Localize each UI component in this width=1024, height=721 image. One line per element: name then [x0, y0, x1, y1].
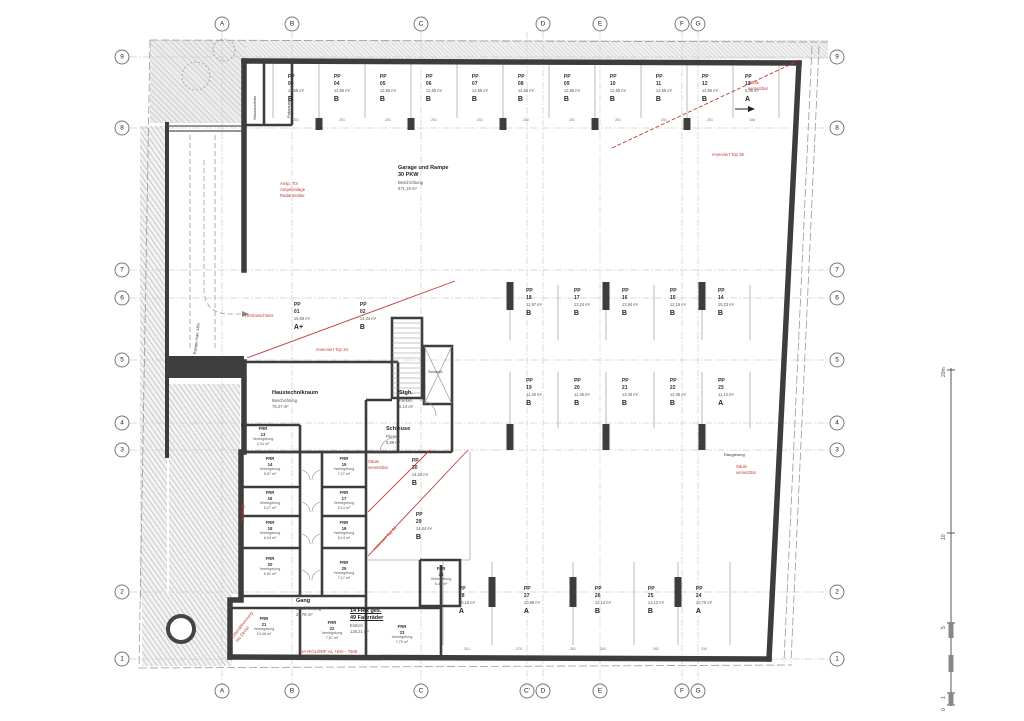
stall-area: 12,55 m² — [426, 88, 442, 93]
room-info: Beschichtung 28,78 m² — [296, 606, 321, 617]
stall-area: 12,14 m² — [595, 600, 611, 605]
frr-id: FRR 23 — [392, 624, 413, 635]
stall-id: PP 20 — [574, 378, 590, 391]
stall-id: PP 12 — [702, 74, 718, 87]
stall-type: B — [574, 309, 590, 318]
parking-stall-label: PP 01 15,59 m² A+ — [294, 302, 310, 332]
plan-annotation: Putzraum — [286, 101, 291, 118]
frr-area: 10,46 m² — [254, 632, 275, 637]
stall-id: PP 07 — [472, 74, 488, 87]
red-annotation: Säule versetzbar — [368, 459, 388, 471]
stall-area: 13,24 m² — [574, 302, 590, 307]
grid-axis-bubble: 8 — [115, 121, 130, 136]
grid-axis-bubble: B — [285, 17, 300, 32]
dimension-text: 251 — [431, 118, 437, 122]
stall-type: B — [702, 95, 718, 104]
grid-axis-bubble: 9 — [830, 50, 845, 65]
room-info: Beschichtung 971,18 m² — [398, 180, 448, 191]
frr-room-label: FRR 13 Verriegelung 3,34 m² — [253, 426, 274, 447]
grid-axis-label: F — [680, 688, 684, 695]
stall-id: PP 21 — [622, 378, 638, 391]
parking-stall-label: PP 06 12,55 m² B — [426, 74, 442, 104]
grid-axis-label: G — [695, 21, 700, 28]
grid-axis-bubble: F — [675, 17, 690, 32]
dimension-text: 5 — [941, 626, 947, 629]
grid-axis-bubble: C — [414, 17, 429, 32]
dimension-text: 301 — [570, 647, 576, 651]
stall-type: B — [412, 479, 428, 488]
grid-axis-label: 9 — [120, 54, 124, 61]
grid-axis-label: 1 — [120, 656, 124, 663]
grid-axis-bubble: D — [536, 17, 551, 32]
parking-stall-label: PP 25 13,12 m² B — [648, 586, 664, 616]
stall-type: B — [656, 95, 672, 104]
grid-axis-bubble: G — [691, 684, 706, 699]
grid-axis-bubble: C — [414, 684, 429, 699]
room-name: Haustechnikraum — [272, 390, 318, 397]
stall-type: A+ — [294, 323, 310, 332]
grid-axis-bubble: 6 — [830, 291, 845, 306]
stall-area: 15,59 m² — [294, 316, 310, 321]
stall-id: PP 04 — [334, 74, 350, 87]
plan-linework — [0, 0, 1024, 721]
room-info: Fliesen 5,14 m² — [399, 398, 413, 409]
stall-type: B — [564, 95, 580, 104]
red-annotation: Ansp. Tor Ampelanlage Radarmelder — [280, 181, 305, 198]
room-name: Stgh. — [399, 390, 413, 397]
parking-stall-label: PP 03 12,65 m² B — [288, 74, 304, 104]
stall-type: B — [360, 323, 376, 332]
frr-room-label: FRR 16 Verriegelung 5,27 m² — [260, 490, 281, 511]
frr-room-label: FRR 20 Verriegelung 6,62 m² — [260, 556, 281, 577]
frr-room-label: FRR 14 Verriegelung 5,57 m² — [260, 456, 281, 477]
red-annotation: reserviert Top 35 — [712, 152, 744, 158]
grid-axis-label: F — [680, 21, 684, 28]
stall-area: 11,12 m² — [718, 392, 734, 397]
grid-axis-bubble: D — [536, 684, 551, 699]
grid-axis-label: G — [695, 688, 700, 695]
parking-stall-label: PP 10 12,55 m² B — [610, 74, 626, 104]
stall-area: 12,55 m² — [702, 88, 718, 93]
stall-area: 15,23 m² — [718, 302, 734, 307]
dimension-text: 251 — [661, 118, 667, 122]
frr-id: FRR 24 — [431, 566, 452, 577]
grid-axis-bubble: A — [215, 684, 230, 699]
grid-axis-label: 2 — [835, 589, 839, 596]
parking-stall-label: PP 05 12,55 m² B — [380, 74, 396, 104]
dimension-text: 251 — [477, 118, 483, 122]
red-annotation: NA+EGL/8NF-AL +KKr - 7508 — [300, 649, 357, 655]
stall-area: 11,40 m² — [526, 392, 542, 397]
room-name: 14 FRR ges. 49 Fahrräder — [350, 608, 383, 622]
stall-type: A — [718, 399, 734, 408]
frr-area: 5,14 m² — [334, 506, 355, 511]
room-name: Gang — [296, 598, 321, 605]
parking-stall-label: PP 26 12,14 m² B — [595, 586, 611, 616]
grid-axis-bubble: 9 — [115, 50, 130, 65]
room-label: 14 FRR ges. 49 Fahrräder Estrich 126,21 … — [350, 608, 383, 634]
stall-id: PP 14 — [718, 288, 734, 301]
frr-id: FRR 13 — [253, 426, 274, 437]
dimension-text: 250 — [523, 118, 529, 122]
grid-axis-label: B — [290, 688, 294, 695]
floor-plan-page: A B C D E F G A B C C' D E F G 9 8 7 6 5… — [0, 0, 1024, 721]
frr-area: 5,27 m² — [260, 506, 281, 511]
room-info: Fliesen 6,89 m² — [386, 434, 410, 445]
frr-area: 3,34 m² — [253, 442, 274, 447]
frr-id: FRR 16 — [260, 490, 281, 501]
stall-id: PP 27 — [524, 586, 540, 599]
stall-area: 14,04 m² — [360, 316, 376, 321]
stall-type: B — [610, 95, 626, 104]
stall-id: PP 03 — [288, 74, 304, 87]
grid-axis-bubble: 2 — [115, 585, 130, 600]
grid-axis-bubble: 2 — [830, 585, 845, 600]
dimension-text: 251 — [707, 118, 713, 122]
parking-stall-label: PP 11 12,55 m² B — [656, 74, 672, 104]
stall-type: B — [574, 399, 590, 408]
stall-area: 10,89 m² — [524, 600, 540, 605]
room-name: Garage und Rampe 30 PKW — [398, 165, 448, 179]
grid-axis-label: A — [220, 21, 224, 28]
parking-stall-label: PP 29 14,04 m² B — [416, 512, 432, 542]
grid-axis-bubble: 5 — [115, 353, 130, 368]
stall-id: PP 15 — [670, 288, 686, 301]
grid-axis-bubble: A — [215, 17, 230, 32]
dimension-text: 10 — [941, 534, 947, 540]
stall-area: 13,12 m² — [648, 600, 664, 605]
room-label: Garage und Rampe 30 PKW Beschichtung 971… — [398, 165, 448, 191]
frr-room-label: FRR 17 Verriegelung 5,14 m² — [334, 490, 355, 511]
stall-area: 10,15 m² — [459, 600, 475, 605]
dimension-text: 1 — [941, 696, 947, 699]
stall-type: A — [459, 607, 475, 616]
grid-axis-bubble: E — [593, 17, 608, 32]
stall-id: PP 29 — [416, 512, 432, 525]
room-label: Schleuse Fliesen 6,89 m² — [386, 426, 410, 445]
stall-area: 12,65 m² — [564, 88, 580, 93]
stall-id: PP 28 — [459, 586, 475, 599]
parking-stall-label: PP 30 14,04 m² B — [412, 458, 428, 488]
grid-axis-label: 7 — [835, 267, 839, 274]
parking-stall-label: PP 16 13,94 m² B — [622, 288, 638, 318]
grid-axis-label: C — [419, 688, 424, 695]
stall-id: PP 06 — [426, 74, 442, 87]
grid-axis-bubble: 5 — [830, 353, 845, 368]
stall-id: PP 16 — [622, 288, 638, 301]
stall-id: PP 11 — [656, 74, 672, 87]
frr-id: FRR 22 — [322, 620, 343, 631]
room-info: Beschichtung 76,27 m² — [272, 398, 318, 409]
stall-id: PP 23 — [718, 378, 734, 391]
frr-area: 6,46 m² — [431, 582, 452, 587]
grid-axis-label: 1 — [835, 656, 839, 663]
grid-axis-bubble: E — [593, 684, 608, 699]
stall-id: PP 08 — [518, 74, 534, 87]
parking-stall-label: PP 19 11,40 m² B — [526, 378, 542, 408]
stall-id: PP 26 — [595, 586, 611, 599]
frr-room-label: FRR 25 Verriegelung 7,17 m² — [334, 560, 355, 581]
room-label: Gang Beschichtung 28,78 m² — [296, 598, 321, 617]
frr-room-label: FRR 23 Verriegelung 7,75 m² — [392, 624, 413, 645]
parking-stall-label: PP 28 10,15 m² A — [459, 586, 475, 616]
red-annotation: Säule versetzbar — [736, 464, 756, 476]
stall-id: PP 10 — [610, 74, 626, 87]
stall-id: PP 17 — [574, 288, 590, 301]
frr-area: 7,27 m² — [334, 472, 355, 477]
dimension-text: 261 — [293, 118, 299, 122]
frr-id: FRR 20 — [260, 556, 281, 567]
red-annotation: Drehanschluss — [245, 313, 273, 319]
red-annotation: Säule versetzbar — [748, 80, 768, 92]
stall-type: B — [380, 95, 396, 104]
parking-stall-label: PP 14 15,23 m² B — [718, 288, 734, 318]
room-name: Schleuse — [386, 426, 410, 433]
grid-axis-label: D — [541, 688, 546, 695]
frr-id: FRR 25 — [334, 560, 355, 571]
dimension-text: 0 — [941, 708, 947, 711]
frr-id: FRR 17 — [334, 490, 355, 501]
stall-area: 13,40 m² — [622, 392, 638, 397]
parking-stall-label: PP 15 12,16 m² B — [670, 288, 686, 318]
frr-id: FRR 15 — [334, 456, 355, 467]
stall-id: PP 01 — [294, 302, 310, 315]
frr-area: 6,04 m² — [260, 536, 281, 541]
grid-axis-bubble: 7 — [115, 263, 130, 278]
grid-axis-bubble: G — [691, 17, 706, 32]
frr-area: 5,14 m² — [334, 536, 355, 541]
grid-axis-label: 7 — [120, 267, 124, 274]
stall-area: 11,36 m² — [574, 392, 590, 397]
stall-area: 12,55 m² — [656, 88, 672, 93]
stall-id: PP 18 — [526, 288, 542, 301]
dimension-text: 251 — [339, 118, 345, 122]
frr-id: FRR 14 — [260, 456, 281, 467]
stall-type: B — [526, 399, 542, 408]
stall-id: PP 02 — [360, 302, 376, 315]
parking-stall-label: PP 02 14,04 m² B — [360, 302, 376, 332]
stall-type: B — [526, 309, 542, 318]
stall-area: 12,55 m² — [610, 88, 626, 93]
stall-id: PP 22 — [670, 378, 686, 391]
grid-axis-label: 8 — [120, 125, 124, 132]
parking-stall-label: PP 17 13,24 m² B — [574, 288, 590, 318]
room-label: Haustechnikraum Beschichtung 76,27 m² — [272, 390, 318, 409]
grid-axis-bubble: F — [675, 684, 690, 699]
grid-axis-label: C — [419, 21, 424, 28]
parking-stall-label: PP 23 11,12 m² A — [718, 378, 734, 408]
plan-annotation: Nachbarbestand — [558, 60, 587, 65]
stall-area: 12,35 m² — [670, 392, 686, 397]
stall-type: B — [518, 95, 534, 104]
stall-type: B — [416, 533, 432, 542]
dimension-text: 251 — [569, 118, 575, 122]
stall-area: 12,55 m² — [380, 88, 396, 93]
grid-axis-label: 8 — [835, 125, 839, 132]
dimension-text: 370 — [516, 647, 522, 651]
stall-type: B — [622, 309, 638, 318]
stall-type: B — [648, 607, 664, 616]
grid-axis-bubble: 1 — [115, 652, 130, 667]
grid-axis-label: E — [598, 688, 602, 695]
grid-axis-label: 6 — [120, 295, 124, 302]
stall-type: B — [334, 95, 350, 104]
grid-axis-label: C' — [524, 688, 530, 695]
stall-type: B — [670, 399, 686, 408]
stall-area: 12,16 m² — [670, 302, 686, 307]
parking-stall-label: PP 09 12,65 m² B — [564, 74, 580, 104]
grid-axis-label: 5 — [120, 357, 124, 364]
stall-type: B — [595, 607, 611, 616]
frr-id: FRR 19 — [334, 520, 355, 531]
parking-stall-label: PP 21 13,40 m² B — [622, 378, 638, 408]
room-info: Estrich 126,21 m² — [350, 623, 383, 634]
plan-annotation: Rangierung — [724, 452, 745, 457]
stall-area: 12,55 m² — [472, 88, 488, 93]
grid-axis-label: 2 — [120, 589, 124, 596]
dimension-text: 282 — [600, 647, 606, 651]
grid-axis-bubble: 6 — [115, 291, 130, 306]
dimension-text: 251 — [615, 118, 621, 122]
grid-axis-label: 6 — [835, 295, 839, 302]
parking-stall-label: PP 24 10,70 m² A — [696, 586, 712, 616]
dimension-text: 334 — [701, 647, 707, 651]
stall-type: B — [622, 399, 638, 408]
plan-annotation: Schacht — [428, 369, 442, 374]
stall-id: PP 30 — [412, 458, 428, 471]
grid-axis-bubble: 4 — [115, 416, 130, 431]
grid-axis-bubble: 7 — [830, 263, 845, 278]
dimension-text: 282 — [653, 647, 659, 651]
parking-stall-label: PP 07 12,55 m² B — [472, 74, 488, 104]
grid-axis-bubble: 4 — [830, 416, 845, 431]
stall-area: 14,04 m² — [416, 526, 432, 531]
grid-axis-label: 3 — [835, 447, 839, 454]
grid-axis-bubble: 3 — [115, 443, 130, 458]
stall-id: PP 25 — [648, 586, 664, 599]
parking-stall-label: PP 18 11,97 m² B — [526, 288, 542, 318]
grid-axis-label: D — [541, 21, 546, 28]
grid-axis-label: A — [220, 688, 224, 695]
frr-area: 7,17 m² — [334, 576, 355, 581]
red-annotation: reserviert Top 34 — [316, 347, 348, 353]
grid-axis-label: 4 — [835, 420, 839, 427]
dimension-text: 301 — [464, 647, 470, 651]
stall-id: PP 19 — [526, 378, 542, 391]
grid-axis-label: 5 — [835, 357, 839, 364]
grid-axis-label: B — [290, 21, 294, 28]
parking-stall-label: PP 27 10,89 m² A — [524, 586, 540, 616]
frr-room-label: FRR 22 Verriegelung 7,67 m² — [322, 620, 343, 641]
room-label: Stgh. Fliesen 5,14 m² — [399, 390, 413, 409]
stall-area: 13,94 m² — [622, 302, 638, 307]
frr-area: 5,57 m² — [260, 472, 281, 477]
stall-id: PP 09 — [564, 74, 580, 87]
frr-room-label: FRR 18 Verriegelung 6,04 m² — [260, 520, 281, 541]
stall-area: 12,55 m² — [518, 88, 534, 93]
grid-axis-bubble: B — [285, 684, 300, 699]
dimension-text: 188 — [749, 118, 755, 122]
stall-area: 10,70 m² — [696, 600, 712, 605]
grid-axis-bubble: 3 — [830, 443, 845, 458]
stall-area: 12,55 m² — [334, 88, 350, 93]
grid-axis-label: 9 — [835, 54, 839, 61]
dimension-text: 251 — [385, 118, 391, 122]
grid-axis-label: E — [598, 21, 602, 28]
frr-area: 7,75 m² — [392, 640, 413, 645]
stall-type: B — [718, 309, 734, 318]
grid-axis-bubble: 1 — [830, 652, 845, 667]
stall-id: PP 24 — [696, 586, 712, 599]
stall-area: 11,97 m² — [526, 302, 542, 307]
stall-area: 14,04 m² — [412, 472, 428, 477]
frr-area: 7,67 m² — [322, 636, 343, 641]
stall-type: A — [745, 95, 759, 104]
stall-type: A — [524, 607, 540, 616]
stall-area: 12,65 m² — [288, 88, 304, 93]
stall-id: PP 05 — [380, 74, 396, 87]
red-annotation: Dehnfuge — [240, 503, 246, 522]
grid-axis-label: 4 — [120, 420, 124, 427]
parking-stall-label: PP 12 12,55 m² B — [702, 74, 718, 104]
frr-room-label: FRR 19 Verriegelung 5,14 m² — [334, 520, 355, 541]
grid-axis-bubble: C' — [520, 684, 535, 699]
frr-room-label: FRR 24 Verriegelung 6,46 m² — [431, 566, 452, 587]
grid-axis-bubble: 8 — [830, 121, 845, 136]
stall-type: B — [670, 309, 686, 318]
stall-type: B — [426, 95, 442, 104]
frr-area: 6,62 m² — [260, 572, 281, 577]
parking-stall-label: PP 20 11,36 m² B — [574, 378, 590, 408]
parking-stall-label: PP 04 12,55 m² B — [334, 74, 350, 104]
stall-type: A — [696, 607, 712, 616]
frr-room-label: FRR 15 Verriegelung 7,27 m² — [334, 456, 355, 477]
stall-type: B — [472, 95, 488, 104]
dimension-text: 20m — [941, 367, 947, 377]
parking-stall-label: PP 08 12,55 m² B — [518, 74, 534, 104]
plan-annotation: Wasserzähler — [252, 96, 257, 120]
grid-axis-label: 3 — [120, 447, 124, 454]
frr-id: FRR 18 — [260, 520, 281, 531]
parking-stall-label: PP 22 12,35 m² B — [670, 378, 686, 408]
